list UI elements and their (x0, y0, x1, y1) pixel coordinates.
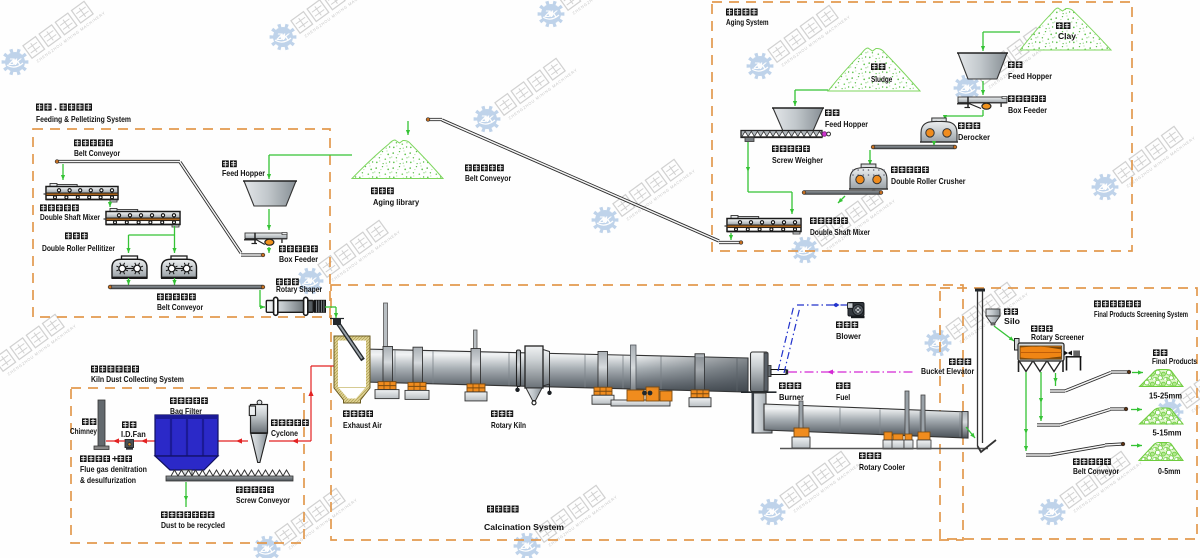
svg-text:Clay: Clay (1058, 32, 1077, 41)
svg-text:Screw Weigher: Screw Weigher (772, 156, 823, 165)
svg-text:Screw Conveyor: Screw Conveyor (236, 496, 290, 505)
svg-text:Sludge: Sludge (871, 75, 893, 84)
svg-text:Feed Hopper: Feed Hopper (825, 120, 868, 129)
svg-text:Dust to be recycled: Dust to be recycled (161, 521, 225, 530)
svg-text:Box Feeder: Box Feeder (1008, 106, 1047, 115)
svg-text:Blower: Blower (836, 332, 862, 341)
svg-text:ZK: ZK (8, 57, 23, 68)
svg-text:Feed Hopper: Feed Hopper (1008, 72, 1052, 81)
svg-text:Belt Conveyor: Belt Conveyor (157, 303, 204, 312)
svg-text:Double Shaft Mixer: Double Shaft Mixer (40, 213, 101, 222)
svg-text:Belt Conveyor: Belt Conveyor (1073, 467, 1120, 476)
svg-text:Bucket Elevator: Bucket Elevator (921, 367, 975, 376)
svg-text:Kiln Dust Collecting System: Kiln Dust Collecting System (91, 374, 184, 384)
svg-text:15-25mm: 15-25mm (1149, 391, 1182, 401)
svg-text:ZK: ZK (753, 61, 768, 72)
svg-text:0-5mm: 0-5mm (1158, 466, 1181, 476)
svg-text:Feed Hopper: Feed Hopper (222, 169, 266, 178)
svg-text:Rotary Cooler: Rotary Cooler (859, 463, 906, 472)
svg-text:I.D.Fan: I.D.Fan (121, 430, 146, 439)
svg-text:Exhaust Air: Exhaust Air (343, 421, 383, 430)
svg-text:ZK: ZK (1045, 507, 1060, 518)
svg-text:ZK: ZK (260, 544, 275, 555)
svg-text:Final Products: Final Products (1152, 357, 1197, 366)
svg-text:Rotary Screener: Rotary Screener (1031, 333, 1085, 342)
svg-text:Fuel: Fuel (836, 393, 850, 402)
svg-text:ZK: ZK (765, 507, 780, 518)
svg-text:Flue gas denitration: Flue gas denitration (80, 465, 147, 474)
svg-text:Silo: Silo (1004, 317, 1020, 326)
svg-text:Belt Conveyor: Belt Conveyor (465, 174, 512, 183)
svg-text:Double Shaft Mixer: Double Shaft Mixer (810, 228, 870, 237)
svg-text:Calcination System: Calcination System (484, 522, 564, 532)
svg-text:ZK: ZK (520, 541, 535, 552)
svg-text:ZK: ZK (931, 338, 946, 349)
svg-text:ZK: ZK (480, 114, 495, 125)
svg-text:Aging library: Aging library (373, 198, 420, 207)
svg-text:Double Roller Crusher: Double Roller Crusher (891, 177, 966, 186)
svg-text:Derocker: Derocker (958, 133, 990, 142)
svg-text:ZK: ZK (276, 32, 291, 43)
svg-text:ZK: ZK (544, 9, 559, 20)
svg-text:Feeding & Pelletizing System: Feeding & Pelletizing System (36, 114, 131, 124)
svg-text:Rotary Kiln: Rotary Kiln (491, 421, 526, 430)
svg-text:ZK: ZK (1098, 182, 1113, 193)
svg-text:ZK: ZK (960, 83, 975, 94)
svg-text:& desulfurization: & desulfurization (80, 476, 136, 485)
svg-text:Double Roller Pellitizer: Double Roller Pellitizer (42, 244, 116, 253)
svg-text:Cyclone: Cyclone (271, 429, 298, 438)
svg-text:Final Products Screening Syste: Final Products Screening System (1094, 310, 1188, 319)
svg-text:Aging System: Aging System (726, 17, 769, 27)
svg-text:Chimney: Chimney (70, 427, 97, 436)
svg-text:ZK: ZK (598, 215, 613, 226)
svg-text:Box Feeder: Box Feeder (279, 255, 319, 264)
svg-text:5-15mm: 5-15mm (1153, 428, 1182, 438)
svg-text:Rotary Shaper: Rotary Shaper (276, 285, 323, 294)
svg-text:Belt Conveyor: Belt Conveyor (74, 149, 121, 158)
